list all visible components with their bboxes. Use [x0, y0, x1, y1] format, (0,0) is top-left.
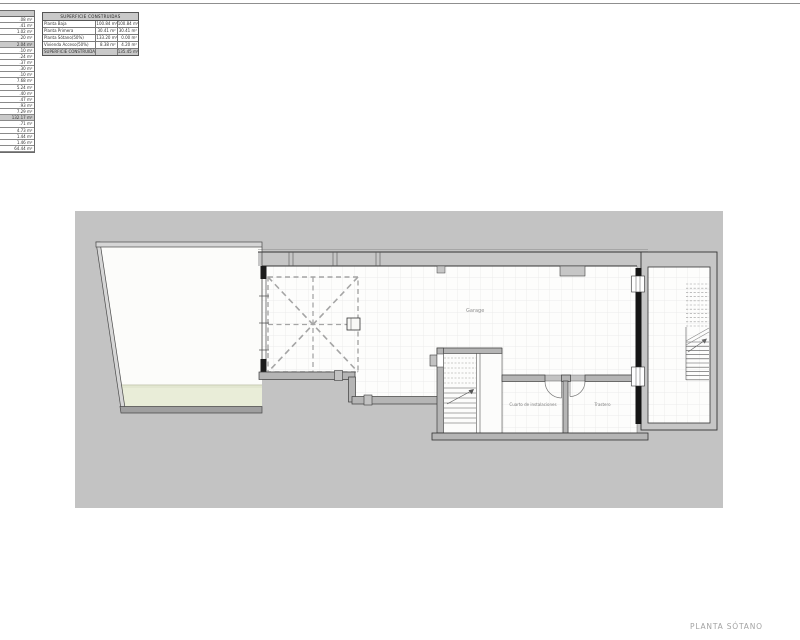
installations-room-floor: [502, 381, 563, 433]
drawing-sheet: .08 m².41 m²1.02 m².20 m²2.04 m².10 m².2…: [0, 0, 800, 640]
terrace-top-wall: [96, 242, 262, 247]
terrace-area: [96, 242, 262, 413]
installations-room-label: Cuarto de instalaciones: [503, 402, 563, 407]
ramp-room: [641, 252, 717, 430]
staircase-room: [430, 348, 502, 433]
wall-pilaster: [335, 371, 343, 381]
garage-label: Garage: [466, 308, 484, 314]
bottom-wall: [432, 433, 648, 440]
storage-room-label: Trastero: [572, 402, 633, 407]
lift-connector: [347, 318, 360, 330]
wall-pilaster: [364, 395, 372, 405]
terrace-bottom-wall: [120, 407, 262, 414]
green-strip: [119, 385, 262, 407]
storage-room-floor: [568, 381, 637, 433]
floor-plan-drawing: [0, 0, 800, 640]
plan-title: PLANTA SÓTANO: [690, 622, 763, 631]
